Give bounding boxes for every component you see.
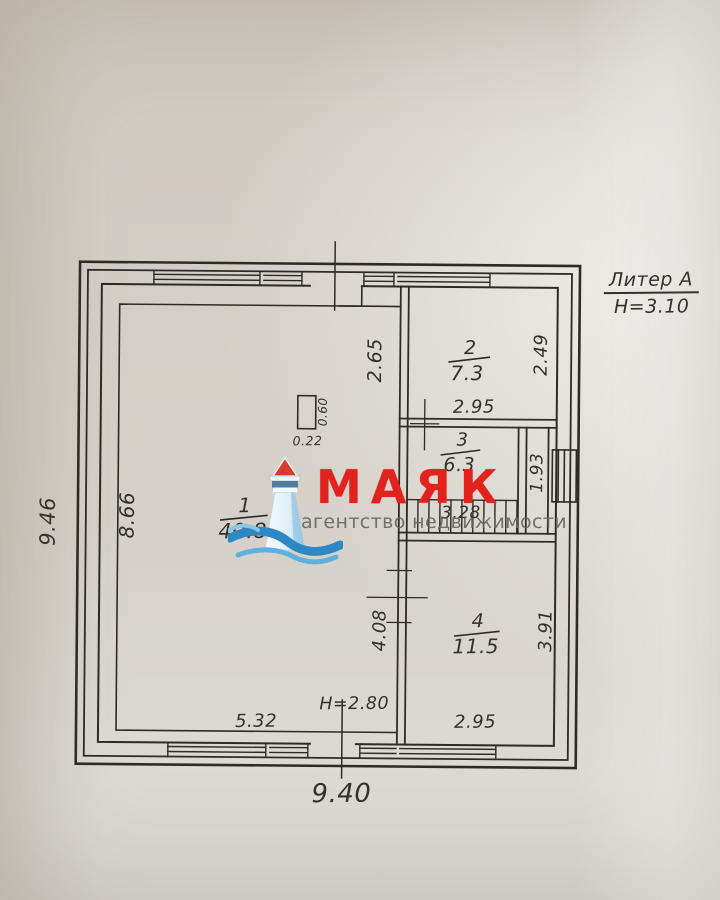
room1-area: 40.8 bbox=[218, 519, 267, 543]
note-ceiling-height: Н=2.80 bbox=[319, 694, 389, 715]
room2-area: 7.3 bbox=[450, 361, 484, 385]
dim-building-height-left: 9.46 bbox=[36, 497, 60, 546]
junction-cross-mark bbox=[410, 400, 438, 450]
dim-building-width-bottom: 9.40 bbox=[311, 779, 371, 810]
dim-room4-bottom-width: 2.95 bbox=[454, 712, 496, 733]
title-floor-height: Н=3.10 bbox=[614, 295, 690, 318]
dim-room4-right-height: 3.91 bbox=[535, 610, 556, 652]
dim-room2-right-height: 2.49 bbox=[531, 334, 552, 376]
floorplan-photo: Литер А Н=3.10 9.46 8.66 9.40 5.32 Н=2.8… bbox=[0, 0, 720, 900]
floorplan-area: Литер А Н=3.10 9.46 8.66 9.40 5.32 Н=2.8… bbox=[0, 0, 720, 900]
exterior-wall-outer bbox=[76, 262, 580, 768]
dim-stove-depth: 0.60 bbox=[316, 397, 330, 426]
room3-number: 3 bbox=[456, 430, 468, 451]
dim-stairs-width: 3.28 bbox=[441, 503, 481, 523]
dim-hall-right-height: 1.93 bbox=[527, 453, 547, 493]
dim-room1-left-wall: 8.66 bbox=[115, 492, 139, 539]
floorplan-drawing bbox=[0, 0, 720, 900]
dim-partition-top: 2.65 bbox=[364, 338, 386, 383]
dim-room4-left-height: 4.08 bbox=[369, 609, 390, 651]
dim-stove-width: 0.22 bbox=[293, 433, 323, 448]
exterior-wall-inner bbox=[98, 284, 558, 746]
room4-area: 11.5 bbox=[452, 634, 499, 658]
title-liter: Литер А bbox=[609, 268, 693, 291]
stove-block bbox=[298, 396, 316, 429]
room4-top-wall bbox=[399, 533, 556, 542]
room4-number: 4 bbox=[472, 610, 485, 632]
room2-number: 2 bbox=[464, 337, 477, 359]
room1-number: 1 bbox=[238, 493, 251, 517]
room3-area: 6.3 bbox=[443, 454, 475, 476]
dim-room1-bottom-width: 5.32 bbox=[235, 711, 277, 732]
dim-room2-bottom-width: 2.95 bbox=[453, 396, 495, 417]
